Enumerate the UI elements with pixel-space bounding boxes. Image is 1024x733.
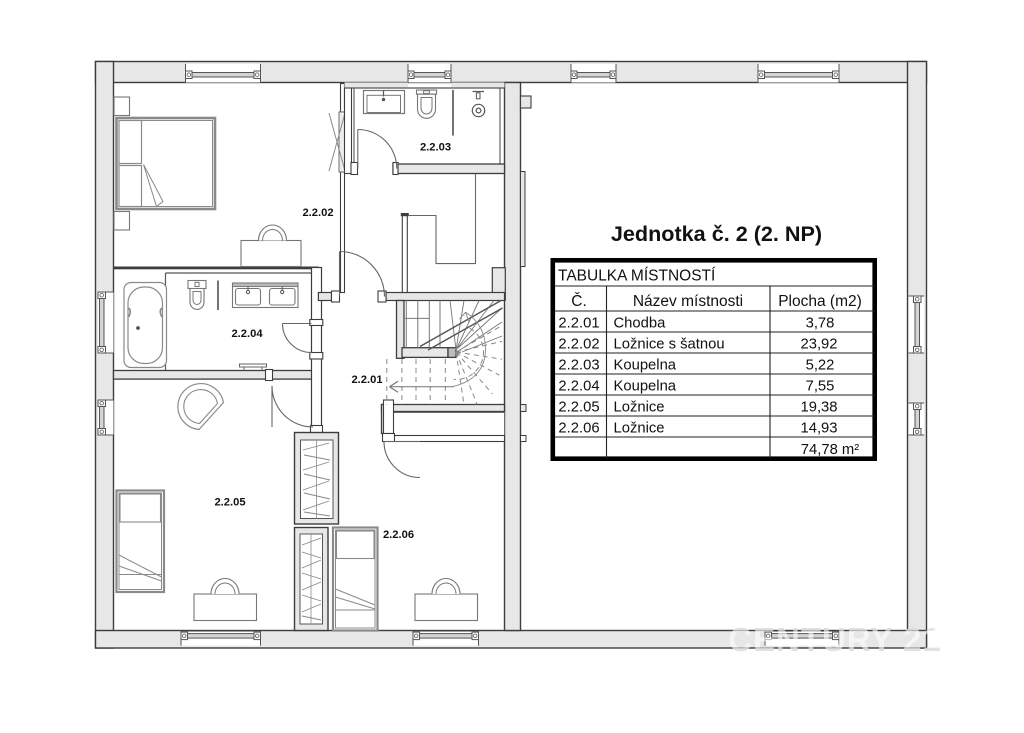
svg-text:2.2.05: 2.2.05 (558, 399, 599, 415)
svg-text:2.2.06: 2.2.06 (383, 529, 414, 541)
svg-text:Plocha (m2): Plocha (m2) (778, 293, 862, 310)
svg-text:Koupelna: Koupelna (614, 357, 677, 373)
svg-text:TABULKA MÍSTNOSTÍ: TABULKA MÍSTNOSTÍ (558, 268, 716, 285)
svg-text:74,78 m²: 74,78 m² (801, 442, 859, 458)
svg-text:2.2.01: 2.2.01 (558, 315, 599, 331)
svg-text:2.2.05: 2.2.05 (214, 497, 245, 509)
svg-text:Koupelna: Koupelna (614, 378, 677, 394)
svg-text:Ložnice: Ložnice (614, 399, 665, 415)
svg-text:Ložnice: Ložnice (614, 420, 665, 436)
svg-text:2.2.02: 2.2.02 (302, 207, 333, 219)
svg-text:2.2.01: 2.2.01 (351, 374, 382, 386)
svg-text:3,78: 3,78 (806, 315, 835, 331)
svg-text:2.2.03: 2.2.03 (558, 357, 599, 373)
svg-text:Ložnice s šatnou: Ložnice s šatnou (614, 336, 725, 352)
svg-text:14,93: 14,93 (800, 420, 837, 436)
svg-text:2.2.02: 2.2.02 (558, 336, 599, 352)
svg-text:2.2.06: 2.2.06 (558, 420, 599, 436)
svg-text:23,92: 23,92 (800, 336, 837, 352)
svg-text:2.2.04: 2.2.04 (558, 378, 599, 394)
svg-text:Název místnosti: Název místnosti (633, 293, 743, 310)
svg-text:Chodba: Chodba (614, 315, 667, 331)
svg-text:2.2.03: 2.2.03 (420, 142, 451, 154)
svg-text:2.2.04: 2.2.04 (231, 328, 263, 340)
svg-text:Jednotka č. 2 (2. NP): Jednotka č. 2 (2. NP) (611, 221, 822, 246)
svg-text:Č.: Č. (571, 293, 587, 310)
svg-text:19,38: 19,38 (800, 399, 837, 415)
svg-text:7,55: 7,55 (806, 378, 835, 394)
svg-text:5,22: 5,22 (806, 357, 835, 373)
